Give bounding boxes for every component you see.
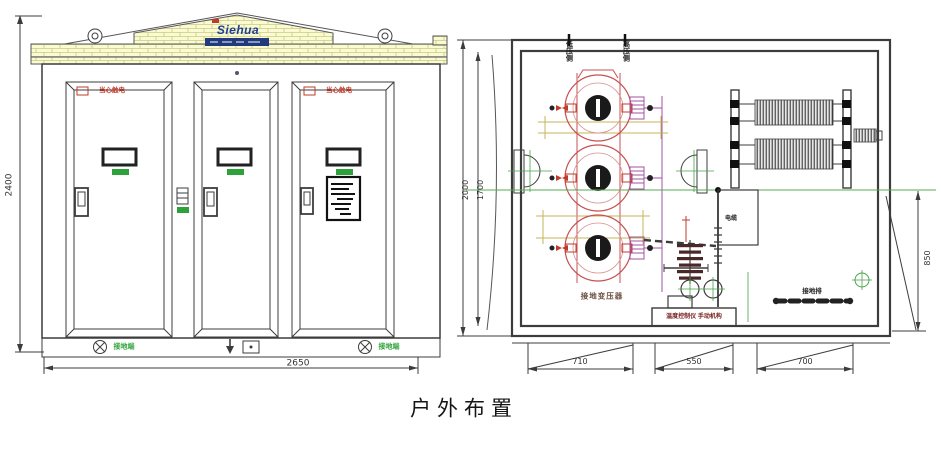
drawing-canvas: 2400 2650 Siehua 当心触电 当心触电 接地端 接地端 2000 … — [0, 0, 941, 456]
meter-window — [327, 149, 360, 165]
dim-line-850 — [892, 191, 926, 331]
inner-wall — [521, 51, 878, 326]
dim-550: 550 — [686, 358, 701, 366]
door-handle — [75, 188, 88, 216]
green-badge — [227, 169, 244, 175]
transformer-icon-3 — [550, 215, 663, 281]
label-control-box: 温度控制仪 手动机构 — [666, 314, 722, 320]
plan-view — [457, 34, 936, 374]
resistor-bank — [730, 90, 882, 188]
ground-bus — [773, 270, 872, 304]
side-mount-left — [508, 150, 552, 193]
grounding-symbol-right — [359, 341, 372, 354]
door-1 — [66, 82, 172, 337]
door1-warning-label: 当心触电 — [99, 88, 125, 95]
dim-850: 850 — [924, 250, 932, 265]
front-elevation-view — [15, 13, 447, 374]
door-swing-arc — [487, 55, 496, 330]
dim-line-2400 — [15, 15, 44, 353]
label-grounding-transformer: 接地变压器 — [581, 292, 624, 300]
linework-layer — [0, 0, 941, 456]
dim-700: 700 — [797, 358, 812, 366]
terminal-connector — [854, 129, 876, 142]
grounding-symbol-left — [94, 341, 107, 354]
diagram-placard — [327, 177, 360, 220]
dim-line-2650 — [44, 357, 418, 374]
label-hv-side: 高压侧 — [623, 41, 630, 62]
meter-window — [218, 149, 251, 165]
green-badge — [336, 169, 353, 175]
warning-icon — [304, 87, 315, 95]
insulator-icon — [664, 216, 708, 284]
down-arrow-icon — [226, 339, 234, 354]
ground-label-right: 接地端 — [379, 344, 400, 351]
meter-window — [103, 149, 136, 165]
label-ground-bus: 接地排 — [802, 289, 822, 296]
ground-label-left: 接地端 — [114, 344, 135, 351]
dim-1700: 1700 — [477, 180, 485, 200]
transformer-icon-1 — [550, 75, 663, 141]
roof — [31, 13, 447, 64]
lifting-eye-icon-left — [88, 29, 102, 43]
dim-2400: 2400 — [6, 174, 15, 197]
door-handle — [301, 188, 313, 214]
cabinet-body — [42, 64, 440, 338]
outer-wall — [512, 40, 890, 336]
label-cable: 电缆 — [725, 216, 737, 222]
door-handle — [204, 188, 217, 216]
warning-icon — [77, 87, 88, 95]
door3-warning-label: 当心触电 — [326, 88, 352, 95]
center-lock — [177, 188, 189, 213]
control-box — [652, 296, 736, 326]
dim-2650: 2650 — [287, 360, 310, 369]
vent-dot — [235, 71, 239, 75]
door-3 — [292, 82, 394, 337]
transformer-icon-2 — [550, 145, 663, 211]
lifting-eye-icon-right — [378, 29, 392, 43]
label-lv-side: 低压侧 — [566, 41, 573, 62]
page-title: 户外布置 — [410, 399, 518, 420]
side-mount-right — [676, 150, 714, 193]
dim-710: 710 — [572, 358, 587, 366]
dim-2000: 2000 — [462, 180, 470, 200]
green-badge — [112, 169, 129, 175]
logo-text: Siehua — [217, 24, 259, 36]
door-2 — [194, 82, 278, 337]
